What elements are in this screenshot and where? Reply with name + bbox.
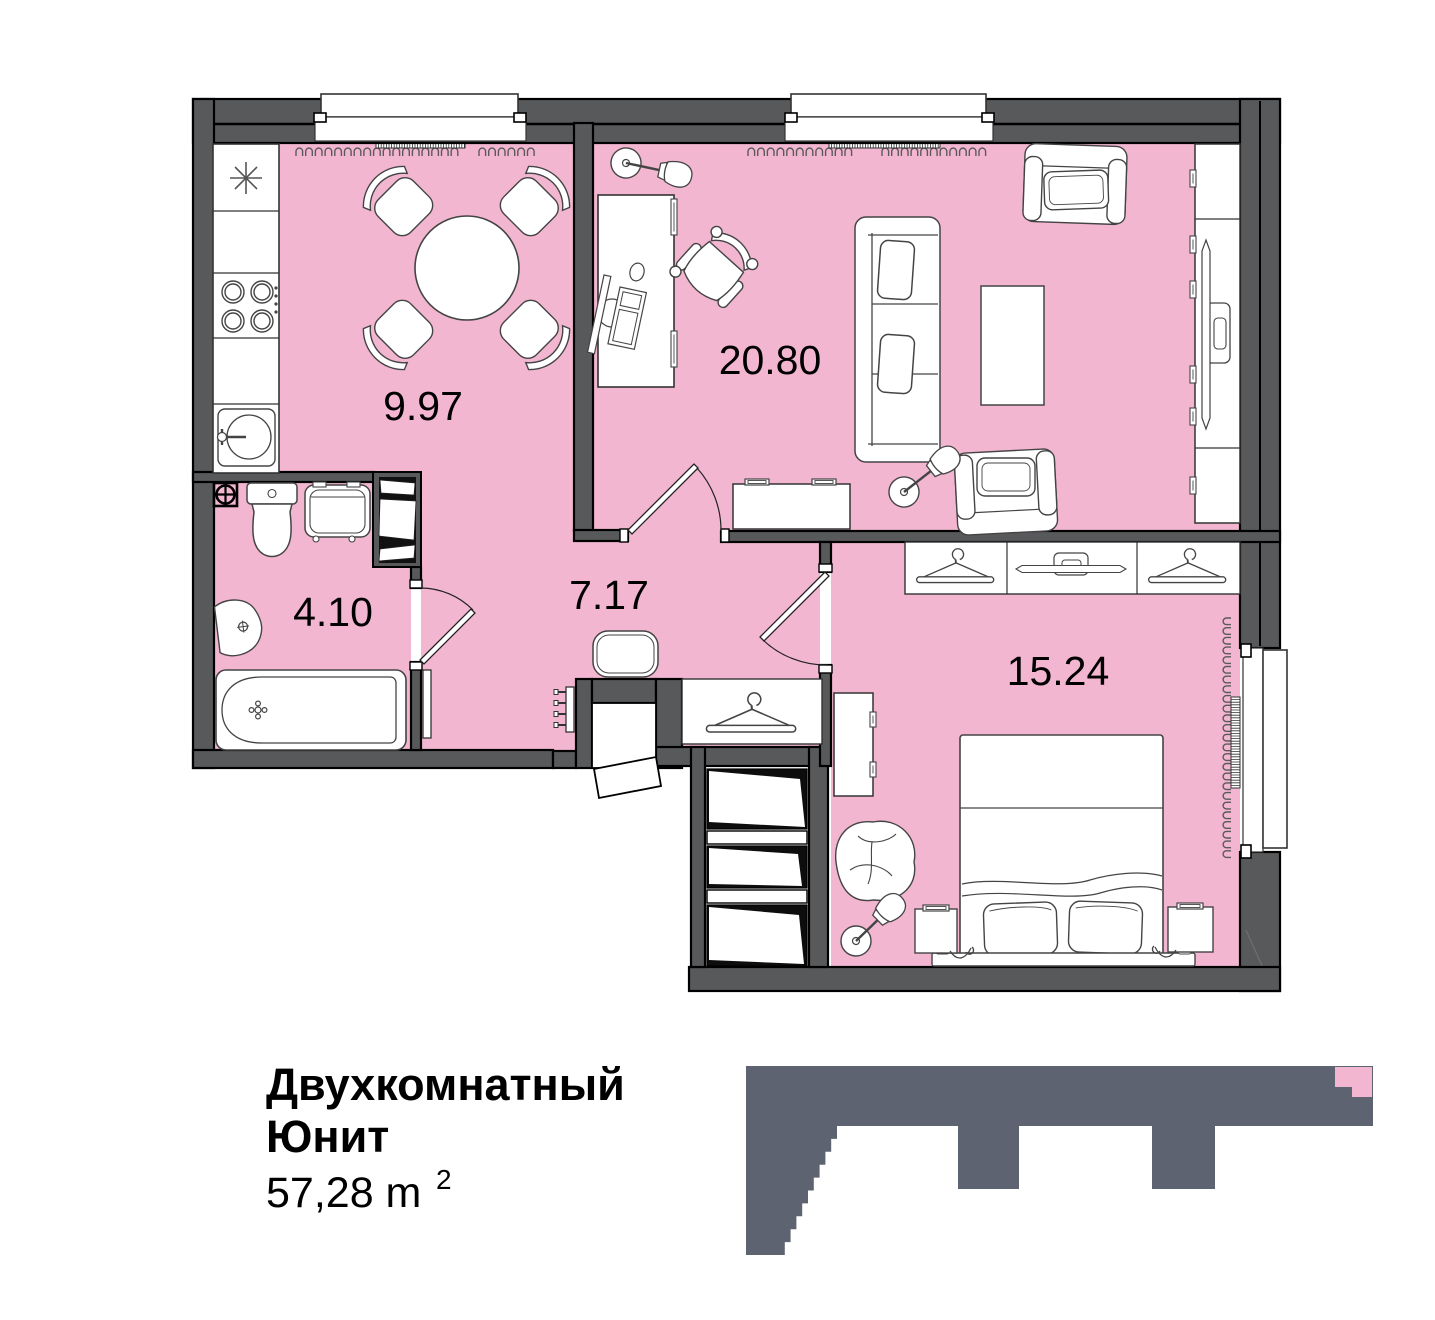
svg-text:7.17: 7.17 [569, 572, 649, 618]
svg-text:9.97: 9.97 [383, 383, 463, 429]
svg-text:4.10: 4.10 [293, 589, 373, 635]
svg-text:57,28 m: 57,28 m [266, 1169, 421, 1217]
svg-text:2: 2 [436, 1164, 452, 1195]
svg-text:20.80: 20.80 [719, 337, 822, 383]
svg-text:Юнит: Юнит [266, 1111, 389, 1162]
svg-text:15.24: 15.24 [1007, 648, 1110, 694]
svg-text:Двухкомнатный: Двухкомнатный [266, 1059, 625, 1110]
